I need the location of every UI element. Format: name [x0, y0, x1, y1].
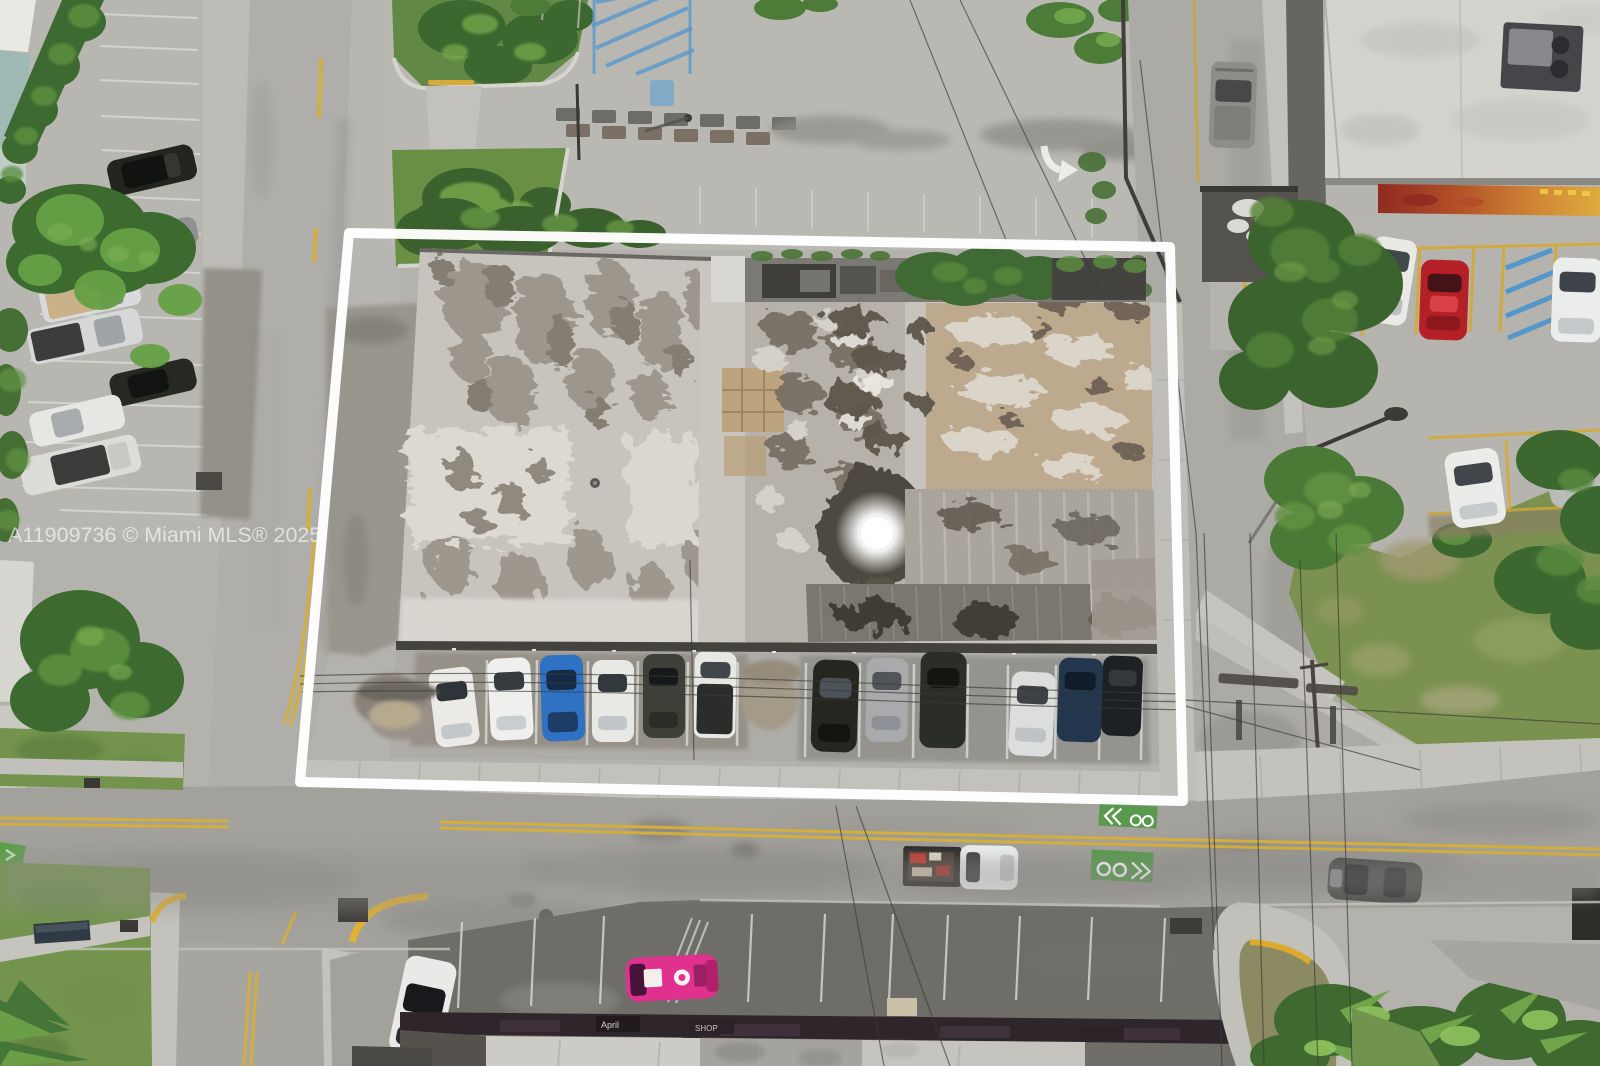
svg-text:A11909736 © Miami MLS® 2025: A11909736 © Miami MLS® 2025	[8, 523, 321, 547]
svg-text:April: April	[601, 1020, 619, 1030]
svg-text:SHOP: SHOP	[695, 1024, 718, 1033]
